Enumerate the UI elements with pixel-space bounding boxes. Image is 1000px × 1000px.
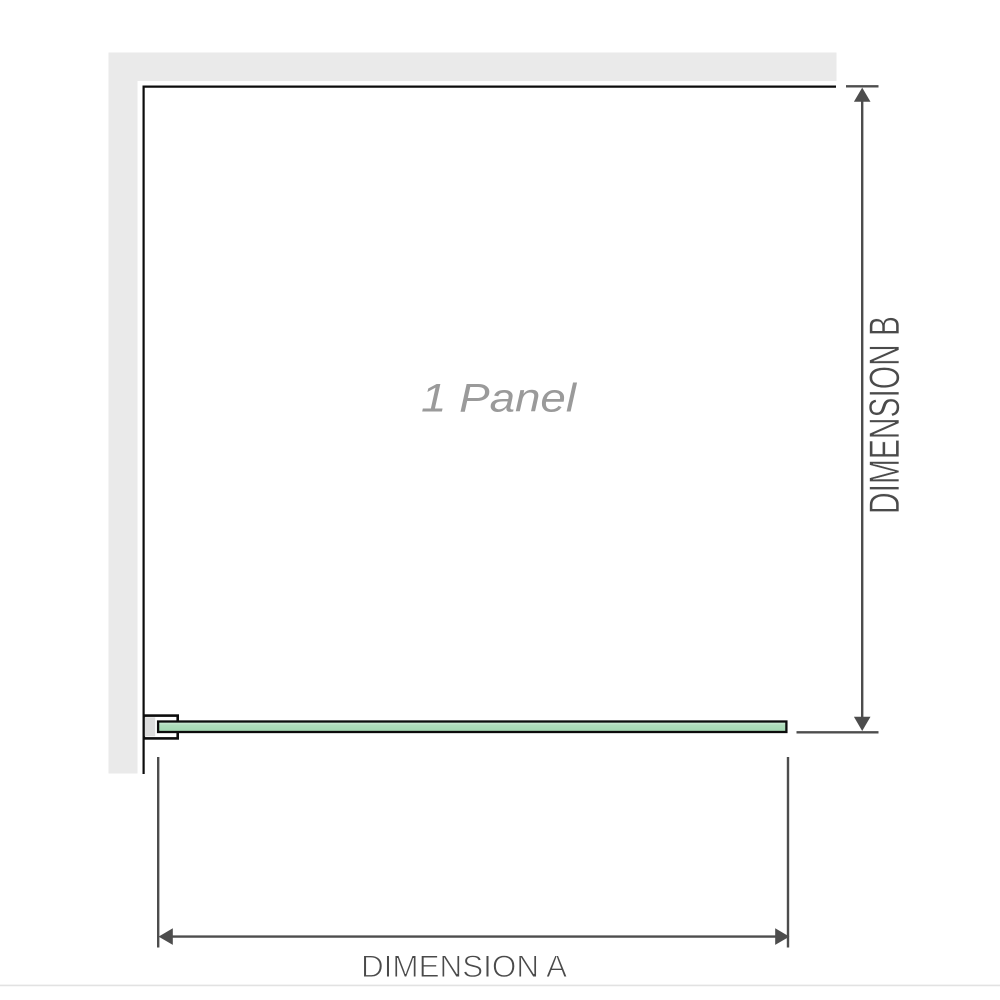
svg-text:DIMENSION B: DIMENSION B bbox=[862, 316, 909, 514]
svg-text:DIMENSION A: DIMENSION A bbox=[361, 949, 567, 984]
svg-text:1 Panel: 1 Panel bbox=[421, 376, 577, 420]
